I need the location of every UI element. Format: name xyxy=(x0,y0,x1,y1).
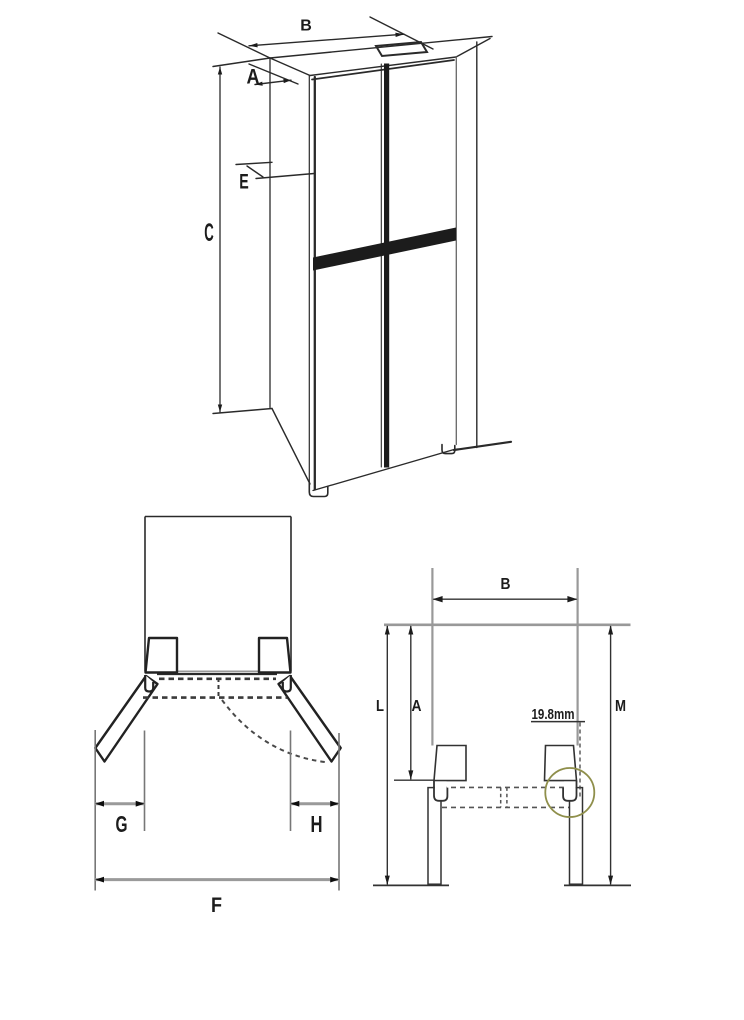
svg-text:B: B xyxy=(501,576,511,593)
svg-text:E: E xyxy=(239,171,249,194)
svg-text:19.8mm: 19.8mm xyxy=(532,707,575,723)
svg-text:A: A xyxy=(247,66,260,89)
svg-text:M: M xyxy=(615,698,626,715)
svg-text:A: A xyxy=(412,698,422,715)
svg-text:F: F xyxy=(211,894,222,917)
svg-text:L: L xyxy=(376,698,384,715)
svg-text:H: H xyxy=(311,811,323,837)
svg-text:G: G xyxy=(116,811,128,837)
svg-text:C: C xyxy=(204,219,214,247)
svg-text:B: B xyxy=(300,18,312,35)
